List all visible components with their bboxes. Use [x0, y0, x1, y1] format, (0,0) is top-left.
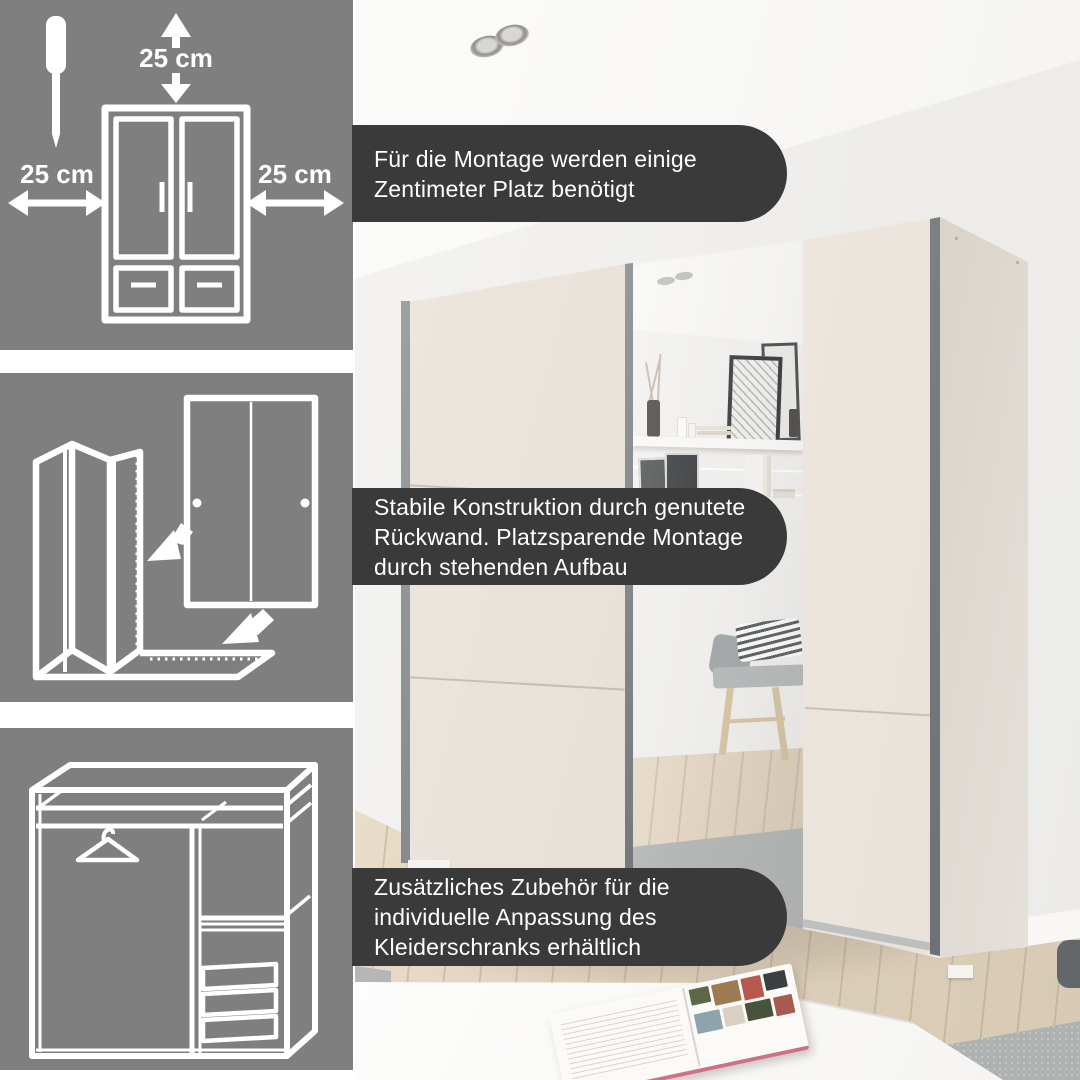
product-infographic: 25 cm 25 cm 25 c	[0, 0, 1080, 1080]
callout-line: Stabile Konstruktion durch genutete	[374, 492, 787, 522]
magazine-photo	[740, 975, 764, 1001]
clearance-arrow-left-icon: 25 cm	[8, 159, 106, 216]
wardrobe-mirror-door	[625, 240, 803, 934]
dark-chair-edge	[1057, 940, 1080, 988]
panel-standing-assembly	[0, 373, 353, 702]
clearance-label-left: 25 cm	[20, 159, 94, 189]
callout-line: Zusätzliches Zubehör für die	[374, 872, 787, 902]
clearance-arrow-top-icon: 25 cm	[139, 13, 213, 103]
magazine-photo	[711, 980, 742, 1006]
magazine-photo	[745, 998, 774, 1021]
callout-accessories: Zusätzliches Zubehör für die individuell…	[352, 868, 787, 966]
screwdriver-icon	[46, 16, 66, 148]
callout-line: Für die Montage werden einige	[374, 144, 787, 174]
clearance-label-top: 25 cm	[139, 43, 213, 73]
wardrobe-foot	[948, 965, 973, 978]
magazine-photo	[763, 970, 788, 991]
panel-wardrobe-interior	[0, 728, 353, 1070]
interior-diagram	[0, 728, 353, 1070]
callout-line: Kleiderschranks erhältlich	[374, 932, 787, 962]
magazine-photo	[773, 994, 796, 1017]
callout-stable-construction: Stabile Konstruktion durch genutete Rück…	[352, 488, 787, 585]
insert-arrow-icons	[147, 523, 274, 644]
screw-dot	[955, 237, 958, 240]
hanger-icon	[78, 830, 137, 860]
panel-montage-clearance: 25 cm 25 cm 25 c	[0, 0, 353, 350]
clearance-label-right: 25 cm	[258, 159, 332, 189]
clearance-arrow-right-icon: 25 cm	[246, 159, 344, 216]
sliding-door-icon	[187, 398, 315, 605]
wardrobe-side-panel	[940, 217, 1028, 957]
right-door-profile	[930, 217, 940, 956]
clearance-diagram: 25 cm 25 cm 25 c	[0, 0, 353, 350]
magazine-photo	[688, 986, 711, 1006]
callout-line: durch stehenden Aufbau	[374, 552, 787, 582]
assembly-diagram	[0, 373, 353, 702]
screw-dot	[1016, 261, 1019, 264]
wardrobe-front-icon	[105, 108, 247, 320]
mirror-glass-sheen	[625, 240, 803, 934]
callout-line: individuelle Anpassung des	[374, 902, 787, 932]
magazine-photo-page	[688, 969, 801, 1060]
callout-line: Zentimeter Platz benötigt	[374, 174, 787, 204]
drawers-icon	[203, 964, 276, 1041]
magazine-photo	[694, 1009, 724, 1034]
callout-montage-space: Für die Montage werden einige Zentimeter…	[352, 125, 787, 222]
magazine-text-page	[560, 996, 689, 1080]
callout-line: Rückwand. Platzsparende Montage	[374, 522, 787, 552]
magazine-photo	[722, 1004, 746, 1027]
wardrobe-right-door	[803, 217, 938, 955]
